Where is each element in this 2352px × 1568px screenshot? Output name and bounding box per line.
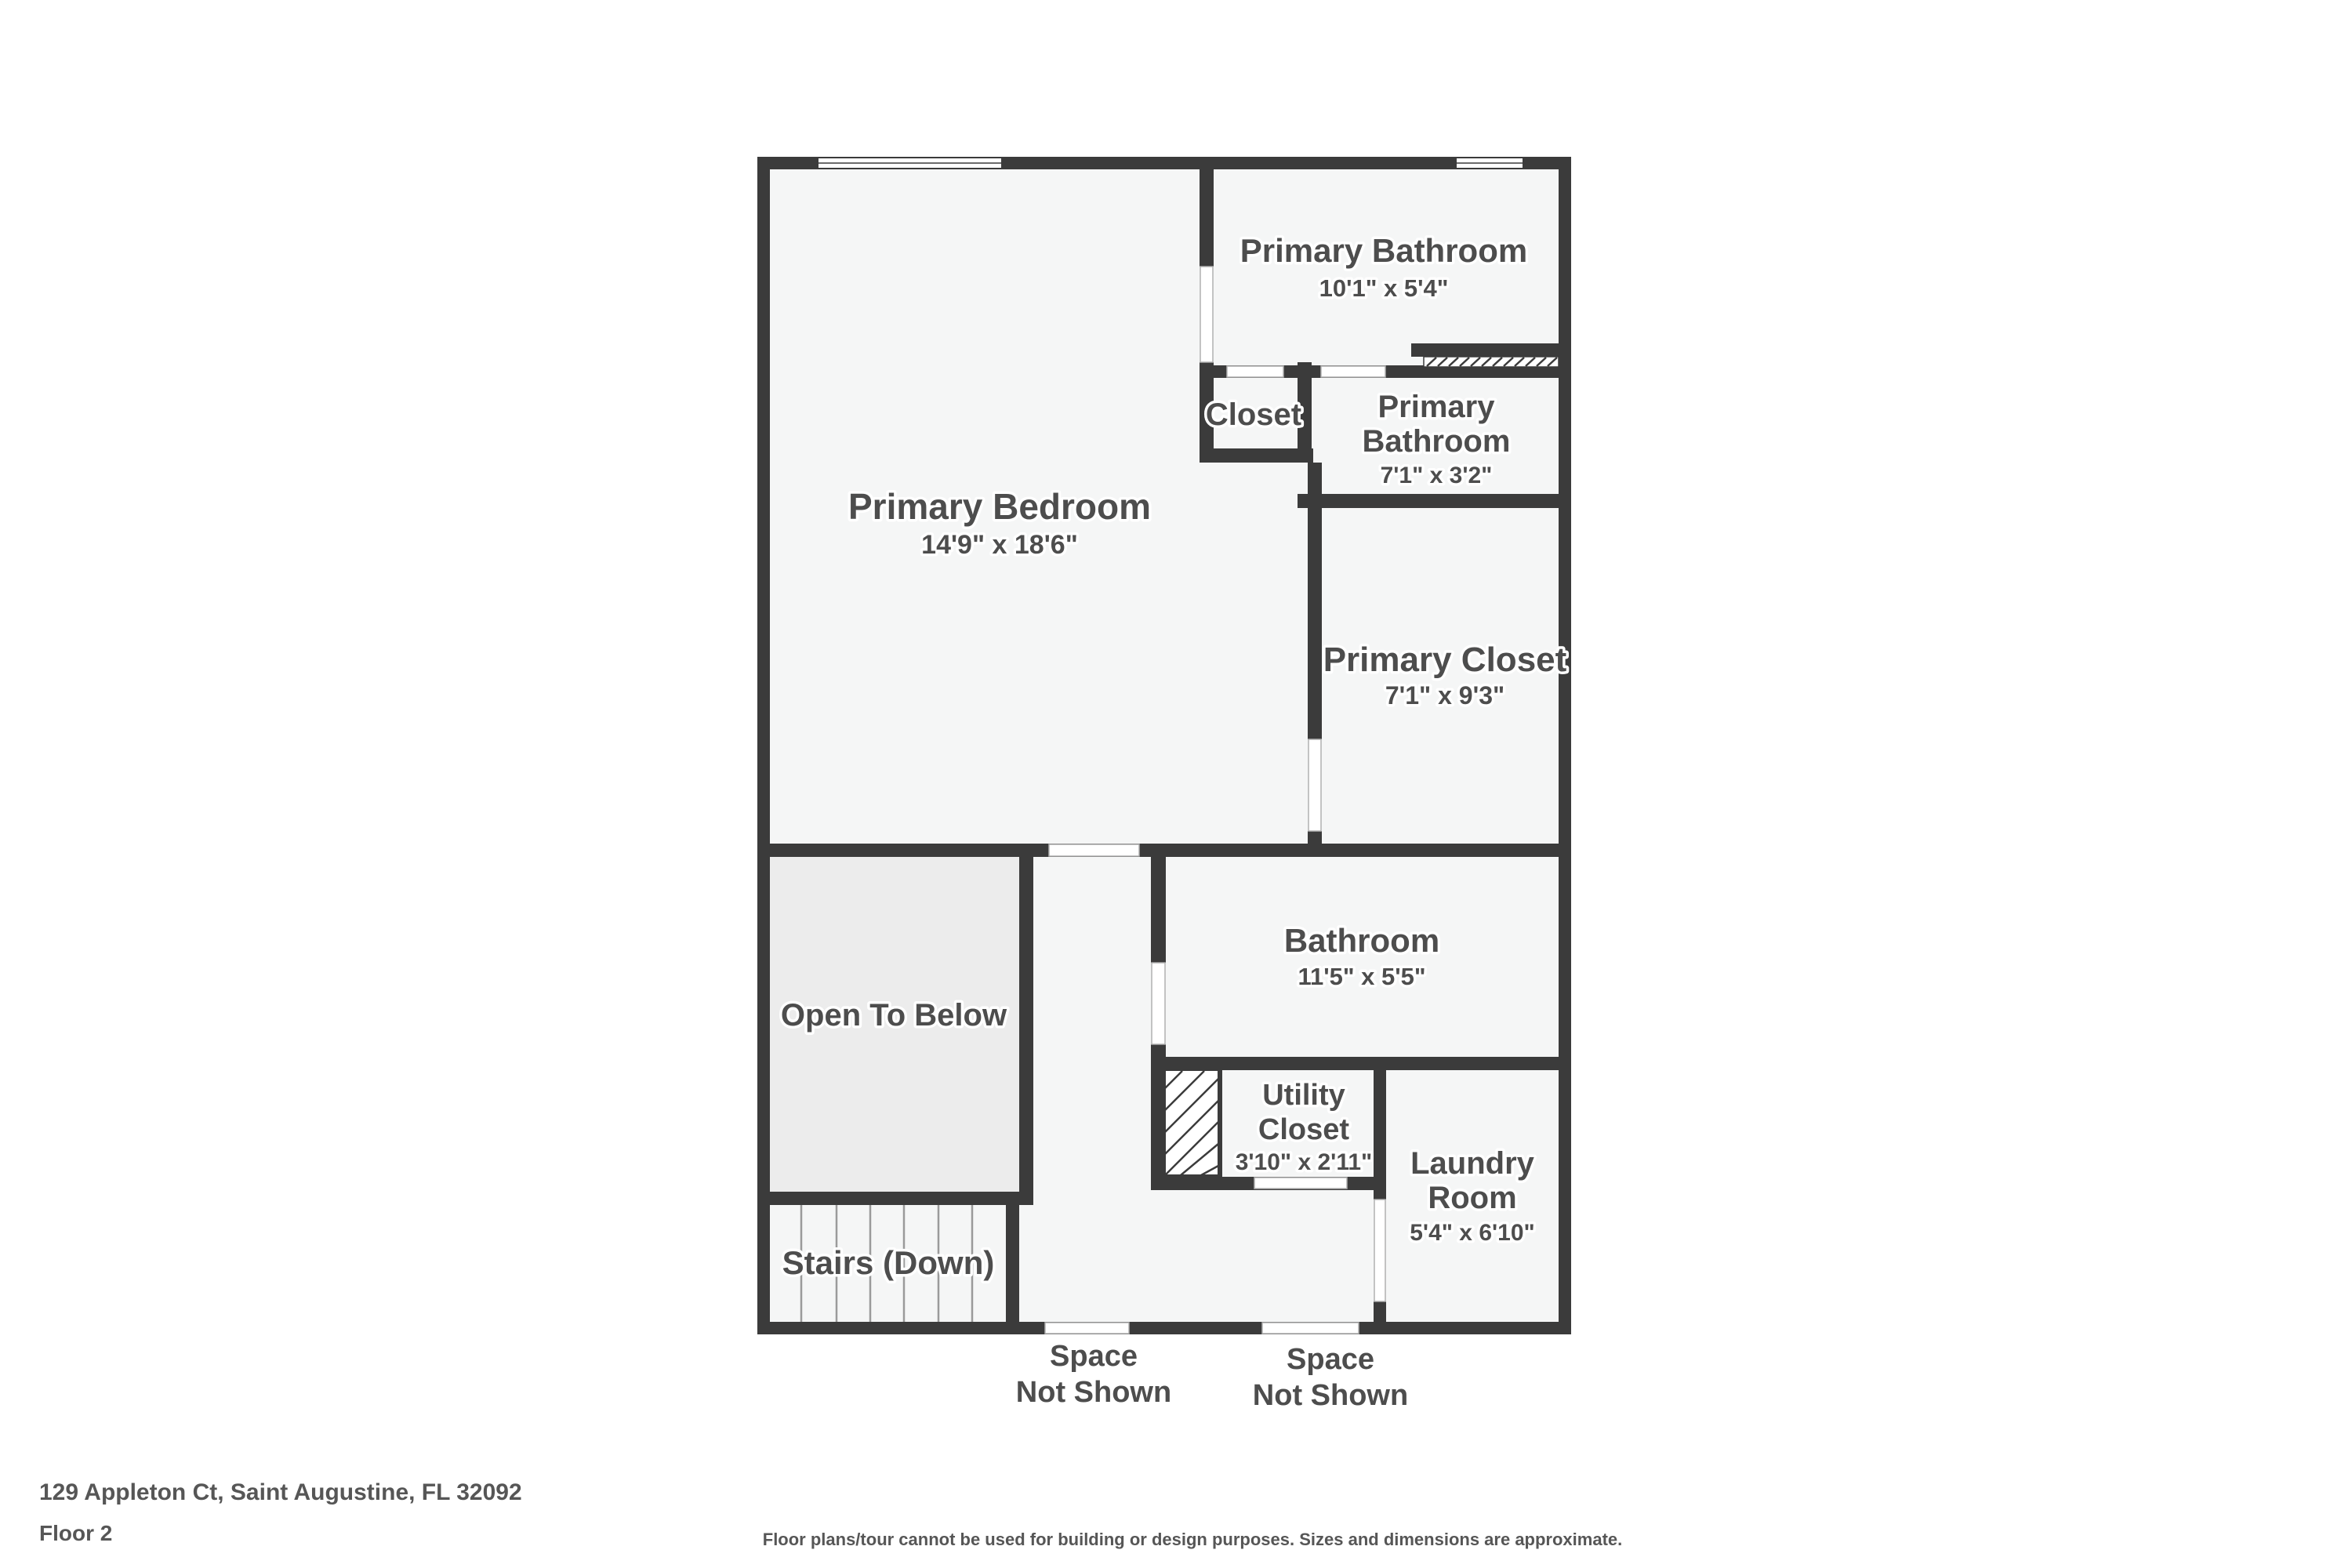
door-bedroom-to-primary-bathroom bbox=[1200, 267, 1213, 362]
room-name-line1: Primary bbox=[1378, 390, 1496, 424]
hatched-strip bbox=[1424, 357, 1559, 367]
room-dims: 5'4" x 6'10" bbox=[1410, 1220, 1535, 1246]
door-laundry-room bbox=[1374, 1200, 1385, 1301]
floor-plan-canvas: Primary Bathroom 10'1" x 5'4" Closet Pri… bbox=[0, 0, 2352, 1568]
room-name-line1: Space bbox=[1287, 1343, 1374, 1376]
label-stairs: Stairs (Down) bbox=[782, 1244, 995, 1281]
opening-space-not-shown-1 bbox=[1045, 1323, 1129, 1334]
door-bedroom-to-hall bbox=[1049, 844, 1139, 856]
label-primary-bathroom-2: Primary Bathroom 7'1" x 3'2" bbox=[1363, 390, 1511, 488]
door-closet bbox=[1227, 366, 1283, 377]
door-utility-closet bbox=[1254, 1178, 1347, 1189]
label-open-to-below: Open To Below bbox=[781, 998, 1007, 1033]
door-primary-closet bbox=[1308, 739, 1321, 831]
opening-space-not-shown-2 bbox=[1262, 1323, 1359, 1334]
room-name: Primary Bedroom bbox=[848, 486, 1151, 527]
room-dims: 10'1" x 5'4" bbox=[1319, 274, 1449, 302]
room-name: Primary Closet bbox=[1323, 641, 1567, 679]
room-name-line2: Room bbox=[1428, 1181, 1516, 1215]
disclaimer-text: Floor plans/tour cannot be used for buil… bbox=[763, 1530, 1623, 1549]
room-name-line2: Bathroom bbox=[1363, 424, 1511, 459]
room-dims: 7'1" x 3'2" bbox=[1381, 463, 1493, 488]
door-primary-bathroom-2 bbox=[1321, 366, 1385, 377]
room-name-line2: Not Shown bbox=[1253, 1379, 1408, 1412]
floor-label: Floor 2 bbox=[39, 1521, 112, 1545]
label-closet: Closet bbox=[1206, 397, 1301, 432]
label-bathroom: Bathroom 11'5" x 5'5" bbox=[1284, 922, 1439, 990]
room-name: Stairs (Down) bbox=[782, 1244, 995, 1281]
window-bedroom bbox=[818, 158, 1002, 169]
room-name: Bathroom bbox=[1284, 922, 1439, 959]
room-name-line1: Space bbox=[1050, 1340, 1138, 1373]
room-name-line1: Laundry bbox=[1410, 1146, 1535, 1181]
room-dims: 14'9" x 18'6" bbox=[921, 530, 1078, 560]
window-primary-bathroom bbox=[1456, 158, 1523, 169]
door-bathroom bbox=[1152, 963, 1165, 1044]
label-laundry-room: Laundry Room 5'4" x 6'10" bbox=[1410, 1146, 1535, 1246]
room-dims: 11'5" x 5'5" bbox=[1298, 963, 1425, 990]
room-name-line2: Closet bbox=[1258, 1113, 1349, 1146]
room-dims: 3'10" x 2'11" bbox=[1236, 1149, 1373, 1175]
room-name-line2: Not Shown bbox=[1016, 1376, 1171, 1409]
room-name-line1: Utility bbox=[1262, 1079, 1345, 1112]
room-name: Open To Below bbox=[781, 998, 1007, 1033]
room-name: Primary Bathroom bbox=[1240, 232, 1527, 269]
room-name: Closet bbox=[1206, 397, 1301, 432]
hatched-utility-chase bbox=[1163, 1069, 1220, 1177]
address-text: 129 Appleton Ct, Saint Augustine, FL 320… bbox=[39, 1479, 522, 1505]
room-dims: 7'1" x 9'3" bbox=[1385, 681, 1504, 710]
